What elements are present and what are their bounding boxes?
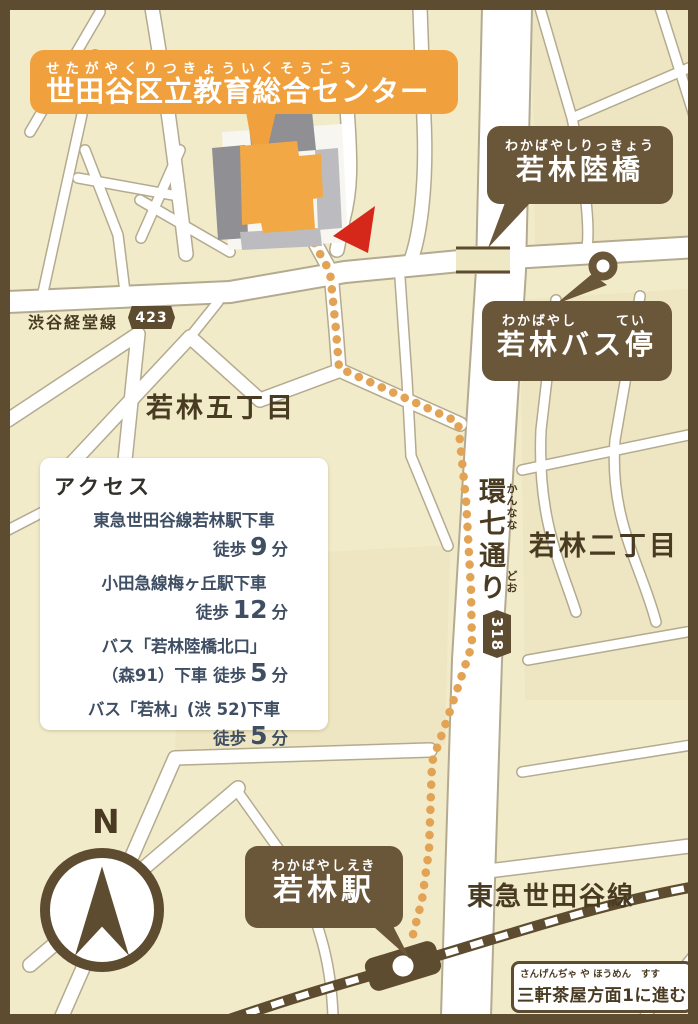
rikkyo-label: 若林陸橋 xyxy=(487,154,673,185)
access-item-train-odakyu: 小田急線梅ヶ丘駅下車 徒歩12分 xyxy=(54,573,314,627)
rikkyo-furigana: わかばやしりっきょう xyxy=(487,135,673,154)
rikkyo-bubble: わかばやしりっきょう 若林陸橋 xyxy=(487,126,673,204)
compass-icon xyxy=(40,848,164,972)
kannana-furigana-2: どお xyxy=(503,570,519,594)
tokyu-line-label: 東急世田谷線 xyxy=(467,876,635,913)
wakabayashi5-label: 若林五丁目 xyxy=(146,386,296,425)
station-furigana: わかばやしえき xyxy=(245,855,403,874)
access-title: アクセス xyxy=(54,471,314,501)
compass-north-label: N xyxy=(92,802,120,841)
sangenjaya-furigana-right: すす xyxy=(641,966,660,980)
bus-stop-bubble: わかばやし てい 若林バス停 xyxy=(482,301,672,381)
access-item-bus-wakabayashi: バス「若林」(渋 52)下車 徒歩5分 xyxy=(54,699,314,753)
access-map: せたがやくりつきょういくそうごう 世田谷区立教育総合センター わかばやしりっきょ… xyxy=(0,0,698,1024)
access-item-train-tokyu: 東急世田谷線若林駅下車 徒歩9分 xyxy=(54,510,314,564)
center-building xyxy=(212,111,348,250)
bus-stop-pin-icon xyxy=(593,256,614,277)
title-banner-furigana: せたがやくりつきょういくそうごう xyxy=(46,57,458,77)
bridge-deck xyxy=(456,246,510,274)
access-item-bus-rikkyo: バス「若林陸橋北口」 （森91）下車 徒歩5分 xyxy=(54,636,314,690)
access-info-box: アクセス 東急世田谷線若林駅下車 徒歩9分 小田急線梅ヶ丘駅下車 徒歩12分 バ… xyxy=(40,458,328,730)
bus-stop-furigana-right: てい xyxy=(616,310,646,329)
station-label: 若林駅 xyxy=(245,874,403,908)
bus-stop-furigana-left: わかばやし xyxy=(502,310,577,329)
sangenjaya-direction-label: 三軒茶屋方面1に進む xyxy=(514,981,690,1006)
bus-stop-label: 若林バス停 xyxy=(482,329,672,360)
kannana-furigana-1: かんなな xyxy=(503,483,519,531)
wakabayashi2-label: 若林二丁目 xyxy=(529,524,679,563)
route-423-badge: 423 xyxy=(128,306,175,329)
shibuya-keido-label: 渋谷経堂線 xyxy=(28,309,118,333)
sangenjaya-furigana-left: さんげんぢゃ や ほうめん xyxy=(520,966,631,980)
station-bubble: わかばやしえき 若林駅 xyxy=(245,846,403,928)
title-banner-text: 世田谷区立教育総合センター xyxy=(46,77,458,107)
route-318-badge: 318 xyxy=(483,610,511,658)
title-banner: せたがやくりつきょういくそうごう 世田谷区立教育総合センター xyxy=(30,50,458,114)
sangenjaya-direction-box: さんげんぢゃ や ほうめん すす 三軒茶屋方面1に進む xyxy=(511,961,693,1013)
